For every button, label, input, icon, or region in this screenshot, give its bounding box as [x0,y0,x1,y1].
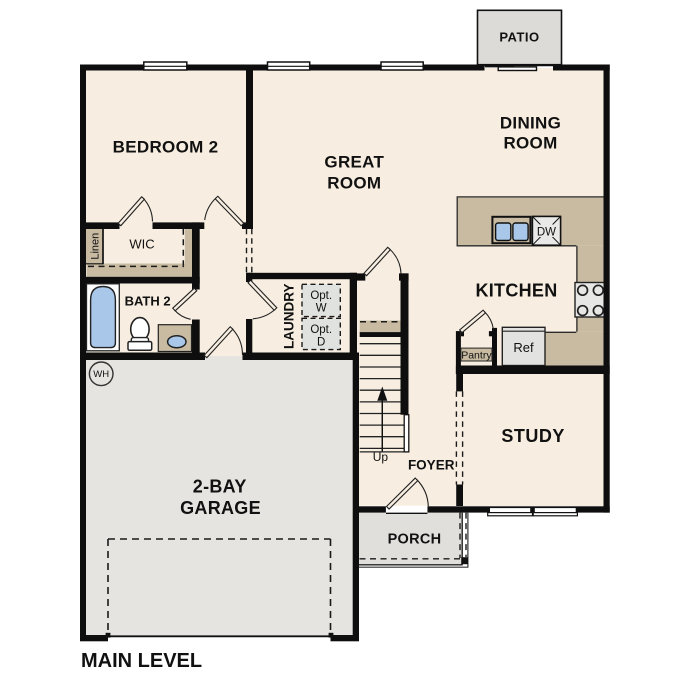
svg-text:Opt.: Opt. [310,290,332,302]
svg-text:LAUNDRY: LAUNDRY [282,283,297,349]
svg-text:FOYER: FOYER [408,457,455,472]
svg-text:WH: WH [93,369,109,380]
svg-text:DINING: DINING [500,114,561,133]
svg-text:MAIN LEVEL: MAIN LEVEL [81,650,202,672]
svg-text:Ref: Ref [513,340,534,355]
svg-text:Linen: Linen [89,233,101,260]
svg-text:Opt.: Opt. [310,324,332,336]
svg-text:2-BAY: 2-BAY [193,476,247,496]
svg-text:Pantry: Pantry [461,349,492,361]
svg-text:DW: DW [537,226,556,238]
svg-text:ROOM: ROOM [327,174,381,193]
svg-text:GARAGE: GARAGE [180,498,261,518]
svg-text:BEDROOM 2: BEDROOM 2 [113,138,219,157]
svg-text:KITCHEN: KITCHEN [475,280,557,300]
svg-text:PATIO: PATIO [499,30,539,45]
svg-text:W: W [316,302,327,314]
svg-text:D: D [317,337,325,349]
svg-text:WIC: WIC [129,236,154,251]
svg-text:Up: Up [373,450,389,464]
svg-text:PORCH: PORCH [388,532,442,548]
svg-text:STUDY: STUDY [501,426,565,446]
svg-text:BATH 2: BATH 2 [125,294,171,309]
svg-text:GREAT: GREAT [324,152,384,171]
svg-text:ROOM: ROOM [503,134,557,153]
